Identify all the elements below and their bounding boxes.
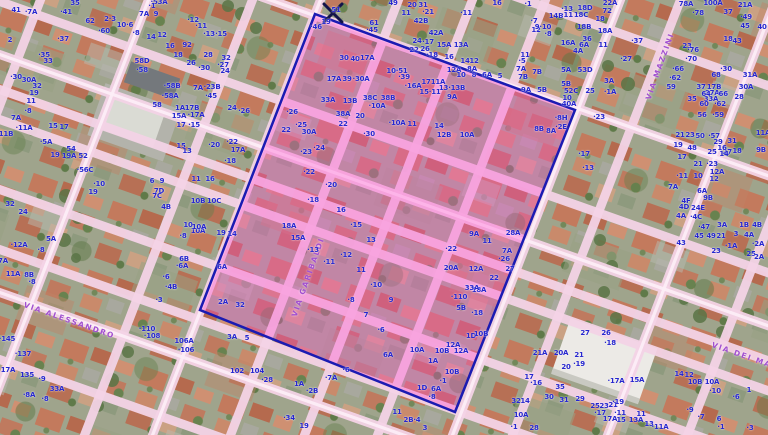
satellite-base-layer: [0, 0, 768, 435]
map-canvas[interactable]: VIA ALESSANDROVIA GARIBALDIVIA MAZZINIVI…: [0, 0, 768, 435]
